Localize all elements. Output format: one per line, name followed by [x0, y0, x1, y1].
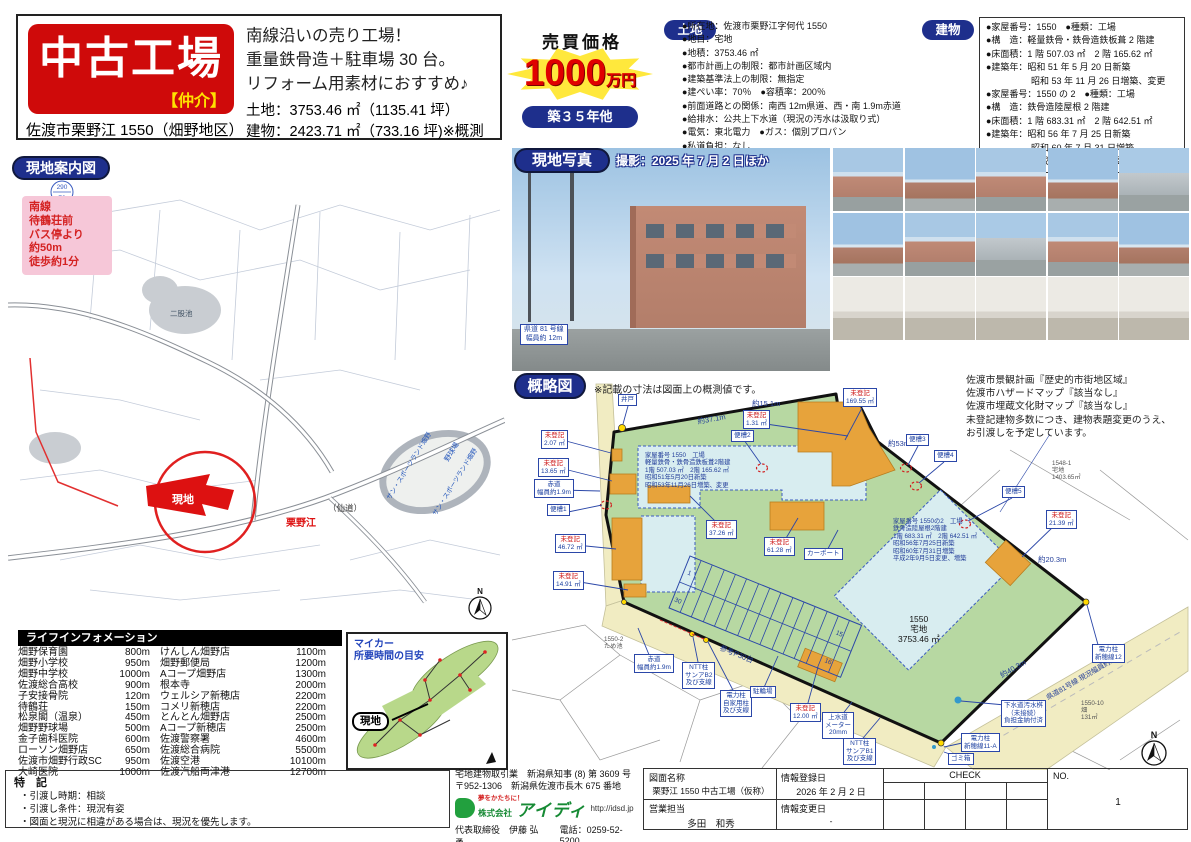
access-note: 南線待鶴荘前バス停より約50m徒歩約1分: [22, 196, 112, 275]
broker-type: 【仲介】: [162, 87, 226, 111]
company-address: 〒952-1306 新潟県佐渡市長木 675 番地: [455, 781, 641, 793]
land-detail-item: ●都市計画上の制限：都市計画区域内: [682, 60, 922, 73]
place-pond: 二股池: [170, 308, 193, 318]
page-no-label: NO.: [1053, 771, 1069, 781]
site-photo-thumb: [905, 148, 975, 211]
sketch-section-label: 概略図: [514, 373, 586, 399]
site-photo-thumb: [833, 148, 903, 211]
ntt-pole-b2-label: NTT柱 サンアB2 及び支線: [682, 662, 715, 689]
special-note-item: ・引渡し条件：現況有姿: [20, 803, 441, 816]
land-detail-item: ●地積：3753.46 ㎡: [682, 47, 922, 60]
special-note-item: ・引渡し時期：相談: [20, 790, 441, 803]
neighbor-lot-1550-10: 1550-10 畑 131㎡: [1081, 700, 1104, 722]
catch-copy: 南線沿いの売り工場！重量鉄骨造＋駐車場 30 台。リフォーム用素材におすすめ♪: [246, 24, 468, 96]
access-note-line: 徒歩約1分: [29, 256, 105, 270]
akamichi-label-1: 赤道 幅員約1.9m: [534, 479, 574, 498]
site-label: 現地: [172, 492, 194, 506]
neighbor-lot-1550-2: 1550-2 ため池: [604, 636, 623, 650]
interior-photo-thumb: [1119, 277, 1189, 340]
ntt-pole-b1-label: NTT柱 サンアB1 及び支線: [843, 738, 876, 765]
title-banner: 中古工場 【仲介】: [28, 24, 234, 114]
facility-name: 佐渡総合高校: [18, 681, 114, 692]
unreg-label-61-28: 未登記61.28 ㎡: [764, 537, 795, 556]
unreg-label-46-72: 未登記46.72 ㎡: [555, 534, 586, 553]
factory-building: [630, 206, 806, 328]
building-detail-item: ●家屋番号：1550 ●種類：工場: [986, 21, 1178, 34]
photos-section-label: 現地写真: [514, 148, 610, 173]
tank5-label: 便槽5: [1002, 486, 1025, 498]
building-detail-item: ●構 造：軽量鉄骨・鉄骨造鉄板葺 2 階建: [986, 34, 1178, 47]
site-photo-thumb: [833, 213, 903, 276]
catch-line: 南線沿いの売り工場！: [246, 24, 468, 48]
tank1-label: 便槽1: [547, 504, 570, 516]
bus-route-line: [30, 358, 118, 506]
access-note-line: バス停より: [29, 229, 105, 243]
land-detail-item: ●電気：東北電力 ●ガス：個別プロパン: [682, 126, 922, 139]
land-detail-list: ●所在地：佐渡市栗野江字何代 1550●地目：宅地●地積：3753.46 ㎡●都…: [682, 20, 922, 166]
tank3-label: 便槽3: [906, 434, 929, 446]
city-plan-note-line: お引渡しを予定しています。: [966, 427, 1190, 440]
building-detail-item: ●建築年：昭和 51 年 5 月 20 日新築: [986, 61, 1178, 74]
catch-line: リフォーム用素材におすすめ♪: [246, 72, 468, 96]
guide-map-section-label: 現地案内図: [12, 156, 110, 180]
trash-label: ゴミ箱: [948, 753, 974, 765]
site-photo-thumb: [976, 213, 1046, 276]
company-logo-mark: [455, 798, 475, 818]
drawing-name-label: 図面名称: [649, 771, 685, 784]
page-no-value: 1: [1047, 797, 1189, 808]
site-photo-thumb: [905, 213, 975, 276]
site-photo-thumb: [1119, 213, 1189, 276]
facility-distance: 2200m: [270, 692, 326, 703]
pond-shape-2: [29, 432, 81, 464]
company-name: アイディ: [516, 801, 586, 820]
life-info-header: ライフインフォメーション: [18, 630, 342, 646]
change-date-value: -: [781, 816, 881, 826]
unreg-label-37-26: 未登記37.26 ㎡: [706, 520, 737, 539]
price-value: 1000万円: [504, 50, 656, 104]
facility-name: 子安接骨院: [18, 692, 114, 703]
private-pole-label: 電力柱 自家用柱 及び支線: [720, 690, 752, 717]
license-number: 宅地建物取引業 新潟県知事 (8) 第 3609 号: [455, 769, 641, 781]
bike-shed-label: 駐輪場: [750, 686, 776, 698]
unreg-label-2-07: 未登記2.07 ㎡: [541, 430, 568, 449]
land-detail-item: ●地目：宅地: [682, 33, 922, 46]
carport-label: カーポート: [804, 548, 843, 560]
city-plan-note-line: 佐渡市埋蔵文化財マップ『該当なし』: [966, 400, 1190, 413]
sketch-building1-text: 家屋番号 1550 工場軽量鉄骨・鉄骨造鉄板葺2階建1階 507.03 ㎡ 2階…: [645, 452, 780, 489]
unreg-label-21-39: 未登記21.39 ㎡: [1046, 510, 1077, 529]
land-detail-item: ●建ぺい率：70％ ●容積率：200％: [682, 86, 922, 99]
sketch-compass: N: [1142, 730, 1166, 765]
registered-date-label: 情報登録日: [781, 771, 826, 784]
special-notes-box: 特 記 ・引渡し時期：相談・引渡し条件：現況有姿・図面と現況に相違がある場合は、…: [5, 770, 450, 828]
svg-text:N: N: [477, 587, 483, 596]
building-detail-item: ●床面積：1 階 507.03 ㎡ 2 階 165.62 ㎡: [986, 48, 1178, 61]
special-notes-header: 特 記: [14, 774, 441, 790]
sketch-building2-text: 家屋番号 1550の2 工場鉄骨造陸屋根2階建1階 683.31 ㎡ 2階 64…: [893, 518, 1001, 562]
unreg-label-1-31: 未登記1.31 ㎡: [743, 410, 770, 429]
building-summary: 建物：2423.71 ㎡（733.16 坪)※概測: [246, 120, 484, 141]
drive-time-site-bubble: 現地: [352, 712, 389, 731]
facility-distance: 2000m: [270, 681, 326, 692]
building-detail-item: ●構 造：鉄骨造陸屋根 2 階建: [986, 101, 1178, 114]
flyer-page: 中古工場 【仲介】 佐渡市栗野江 1550（畑野地区） 南線沿いの売り工場！重量…: [0, 0, 1191, 842]
company-representative: 代表取締役 伊藤 弘勇: [455, 823, 546, 842]
life-info-table: 畑野保育園 800m けんしん畑野店 1100m 畑野小学校 950m 畑野郵便…: [18, 648, 342, 779]
unreg-label-169-55: 未登記169.55 ㎡: [843, 388, 877, 407]
power-pole-11a-label: 電力柱 新穂線11-A: [961, 733, 1000, 752]
site-photo-thumb: [1119, 148, 1189, 211]
interior-photo-thumb: [1048, 277, 1118, 340]
registered-date-value: 2026 年 2 月 2 日: [781, 785, 881, 798]
company-block: 宅地建物取引業 新潟県知事 (8) 第 3609 号 〒952-1306 新潟県…: [455, 769, 641, 831]
special-note-item: ・図面と現況に相違がある場合は、現況を優先します。: [20, 816, 441, 829]
dim-20-3: 約20.3m: [1038, 554, 1066, 564]
sewer-label: 下水道汚水桝 （未接続） 負担金納付済: [1001, 700, 1046, 727]
place-kurinoe: 栗野江: [286, 516, 316, 529]
facility-name: 根本寺: [160, 681, 270, 692]
building-detail-item: ●床面積：1 階 683.31 ㎡ 2 階 642.51 ㎡: [986, 115, 1178, 128]
facility-name: ウェルシア新穂店: [160, 692, 270, 703]
interior-photo-thumb: [976, 277, 1046, 340]
company-phone: 電話：0259-52-5200: [560, 823, 641, 842]
building-detail-item: ●家屋番号：1550 の 2 ●種類：工場: [986, 88, 1178, 101]
building-detail-list: ●家屋番号：1550 ●種類：工場●構 造：軽量鉄骨・鉄骨造鉄板葺 2 階建●床…: [986, 21, 1178, 168]
tank4-label: 便槽4: [934, 450, 957, 462]
interior-photo-thumb: [905, 277, 975, 340]
map-compass: N: [469, 587, 491, 619]
sales-rep-label: 営業担当: [649, 802, 685, 815]
facility-distance: 900m: [114, 681, 160, 692]
company-name-prefix: 株式会社: [478, 808, 512, 818]
city-plan-note-line: 佐渡市ハザードマップ『該当なし』: [966, 387, 1190, 400]
company-logo-row: 夢をかたちに！ 株式会社 アイディ http://idsd.jp: [455, 795, 641, 821]
svg-text:290: 290: [57, 184, 68, 191]
dim-15-1: 約15.1m: [752, 398, 780, 408]
land-detail-item: ●所在地：佐渡市栗野江字何代 1550: [682, 20, 922, 33]
akamichi-label-2: 赤道 幅員約1.9m: [634, 654, 674, 673]
access-note-line: 約50m: [29, 242, 105, 256]
life-info-row: 子安接骨院 120m ウェルシア新穂店 2200m: [18, 692, 342, 703]
header-box: 中古工場 【仲介】 佐渡市栗野江 1550（畑野地区） 南線沿いの売り工場！重量…: [16, 14, 502, 140]
company-url[interactable]: http://idsd.jp: [590, 804, 633, 813]
document-info-table: 図面名称 栗野江 1550 中古工場（仮称） 情報登録日 2026 年 2 月 …: [643, 768, 1188, 830]
place-sendo: （仙道）: [328, 503, 362, 513]
power-pole-12-label: 電力柱 新穂線12: [1092, 644, 1125, 663]
check-header: CHECK: [883, 770, 1047, 780]
building-detail-item: 昭和 53 年 11 月 26 日増築、変更: [986, 75, 1178, 88]
city-plan-note-line: 未登記建物多数につき、建物表題変更のうえ、: [966, 414, 1190, 427]
city-plan-note-line: 佐渡市景観計画『歴史的市街地区域』: [966, 374, 1190, 387]
lot-area-label: 1550 宅地 3753.46 ㎡: [898, 614, 940, 644]
main-site-photo: 県道 81 号線 幅員約 12m: [512, 148, 830, 371]
road-caption: 県道 81 号線 幅員約 12m: [520, 324, 568, 345]
building-detail-item: ●建築年：昭和 56 年 7 月 25 日新築: [986, 128, 1178, 141]
access-note-line: 南線: [29, 201, 105, 215]
tank2-label: 便槽2: [731, 430, 754, 442]
island-compass: [486, 752, 496, 764]
well-marker: [619, 425, 626, 432]
building-age-badge: 築３５年他: [522, 106, 638, 128]
land-summary: 土地：3753.46 ㎡（1135.41 坪）: [246, 99, 459, 120]
sketch-note: ※記載の寸法は図面上の概測値です。: [594, 381, 761, 396]
drawing-name-value: 栗野江 1550 中古工場（仮称）: [646, 785, 776, 797]
city-plan-notes: 佐渡市景観計画『歴史的市街地区域』佐渡市ハザードマップ『該当なし』佐渡市埋蔵文化…: [966, 374, 1190, 440]
unreg-label-14-91: 未登記14.91 ㎡: [553, 571, 584, 590]
life-info-row: 佐渡総合高校 900m 根本寺 2000m: [18, 681, 342, 692]
unreg-label-12-00: 未登記12.00 ㎡: [790, 703, 821, 722]
change-date-label: 情報変更日: [781, 802, 826, 815]
property-address: 佐渡市栗野江 1550（畑野地区）: [26, 119, 244, 140]
page-title: 中古工場: [28, 26, 234, 92]
site-photo-thumb: [1048, 148, 1118, 211]
site-photo-thumb: [1048, 213, 1118, 276]
utility-pole: [570, 156, 574, 321]
facility-distance: 120m: [114, 692, 160, 703]
land-detail-item: ●建築基準法上の制限：無指定: [682, 73, 922, 86]
land-detail-item: ●給排水：公共上下水道（現況の汚水は汲取り式）: [682, 113, 922, 126]
catch-line: 重量鉄骨造＋駐車場 30 台。: [246, 48, 468, 72]
land-detail-item: ●前面道路との関係：南西 12m県道、西・南 1.9m赤道: [682, 100, 922, 113]
price-unit: 万円: [606, 72, 636, 89]
water-meter-label: 上水道 メーター 20mm: [822, 712, 854, 739]
svg-text:N: N: [1151, 730, 1158, 740]
site-photo-thumb: [976, 148, 1046, 211]
special-notes-list: ・引渡し時期：相談・引渡し条件：現況有姿・図面と現況に相違がある場合は、現況を優…: [14, 790, 441, 829]
drive-time-title: マイカー 所要時間の目安: [354, 639, 424, 663]
photo-thumbnails: [833, 148, 1191, 371]
interior-photo-thumb: [833, 277, 903, 340]
neighbor-lot-1548: 1548-1 宅地 1403.65㎡: [1052, 460, 1081, 482]
sales-rep-value: 多田 和秀: [646, 816, 776, 830]
photo-date-note: 撮影：2025 年 7 月 2 日ほか: [616, 152, 769, 169]
building-section-label: 建物: [922, 20, 974, 40]
access-note-line: 待鶴荘前: [29, 215, 105, 229]
unreg-label-13-65: 未登記13.65 ㎡: [538, 458, 569, 477]
